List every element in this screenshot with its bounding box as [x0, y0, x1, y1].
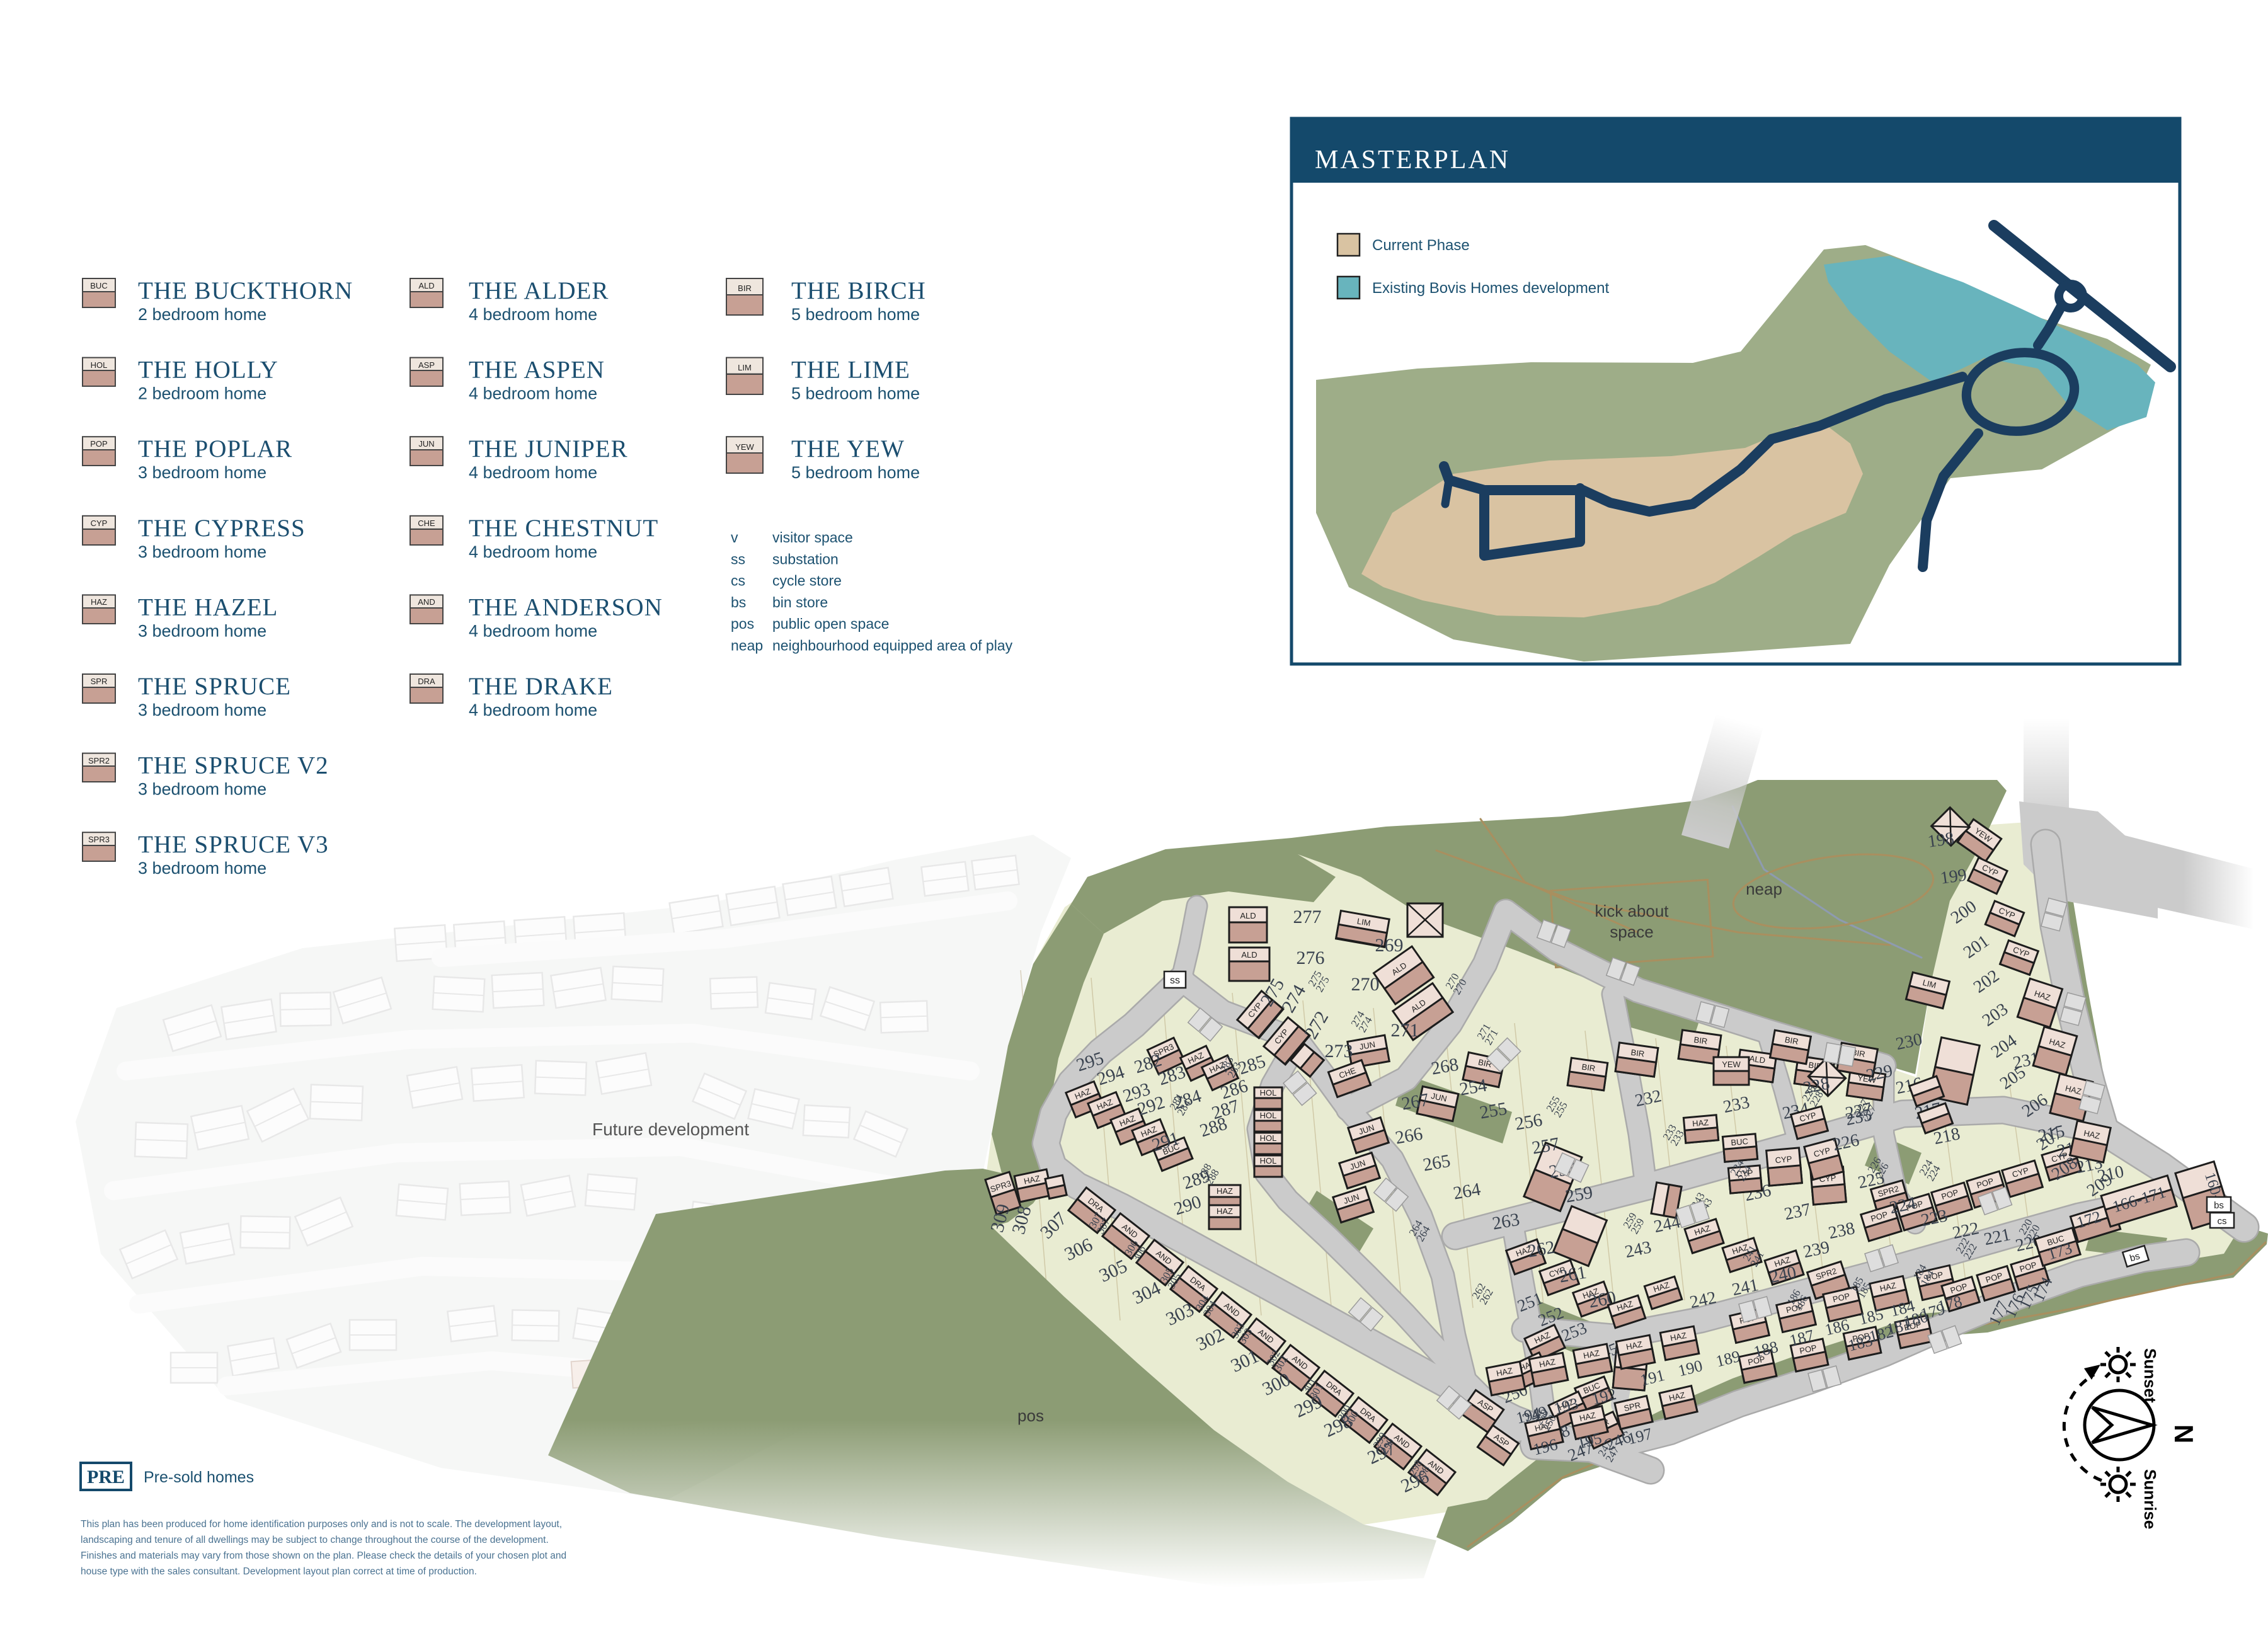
svg-text:5 bedroom home: 5 bedroom home [791, 305, 920, 324]
svg-text:Pre-sold homes: Pre-sold homes [144, 1469, 254, 1486]
svg-text:Current Phase: Current Phase [1372, 237, 1470, 254]
svg-text:ALD: ALD [1240, 911, 1256, 920]
svg-text:199: 199 [1939, 865, 1968, 888]
svg-text:BIR: BIR [1581, 1062, 1596, 1074]
svg-text:HOL: HOL [91, 360, 108, 370]
svg-text:THE YEW: THE YEW [791, 435, 905, 462]
svg-text:neighbourhood equipped area of: neighbourhood equipped area of play [772, 638, 1013, 654]
svg-text:Existing Bovis Homes developme: Existing Bovis Homes development [1372, 280, 1610, 297]
svg-text:3 bedroom home: 3 bedroom home [138, 621, 266, 640]
svg-text:HOL: HOL [1260, 1088, 1277, 1097]
svg-text:cs: cs [731, 573, 745, 589]
svg-text:POP: POP [90, 439, 107, 449]
svg-text:DRA: DRA [418, 677, 435, 686]
svg-text:N: N [2169, 1424, 2199, 1443]
svg-text:neap: neap [731, 638, 763, 654]
svg-text:4 bedroom home: 4 bedroom home [469, 305, 597, 324]
svg-text:Finishes and materials may var: Finishes and materials may vary from tho… [81, 1550, 566, 1561]
svg-text:cycle store: cycle store [772, 573, 842, 589]
svg-text:THE HOLLY: THE HOLLY [138, 357, 278, 384]
svg-text:THE SPRUCE V2: THE SPRUCE V2 [138, 752, 329, 779]
svg-text:THE HAZEL: THE HAZEL [138, 593, 278, 621]
svg-text:5 bedroom home: 5 bedroom home [791, 463, 920, 482]
svg-text:THE BIRCH: THE BIRCH [791, 277, 926, 304]
svg-text:4 bedroom home: 4 bedroom home [469, 542, 597, 561]
svg-text:HAZ: HAZ [91, 597, 107, 607]
svg-text:THE JUNIPER: THE JUNIPER [469, 435, 628, 462]
svg-text:bs: bs [731, 594, 746, 610]
svg-text:THE LIME: THE LIME [791, 357, 910, 384]
svg-text:Future development: Future development [592, 1120, 749, 1139]
svg-text:Sunrise: Sunrise [2141, 1469, 2160, 1529]
svg-text:BUC: BUC [1731, 1137, 1749, 1147]
svg-text:house type with the sales cons: house type with the sales consultant. De… [81, 1566, 477, 1577]
svg-text:3 bedroom home: 3 bedroom home [138, 463, 266, 482]
svg-text:Sunset: Sunset [2141, 1348, 2160, 1403]
svg-text:SPR: SPR [91, 677, 108, 686]
svg-text:THE ASPEN: THE ASPEN [469, 357, 605, 384]
svg-text:THE SPRUCE V3: THE SPRUCE V3 [138, 831, 329, 858]
svg-text:HOL: HOL [1260, 1156, 1277, 1165]
svg-text:ss: ss [1170, 975, 1180, 986]
svg-text:277: 277 [1293, 907, 1322, 927]
svg-text:BIR: BIR [1630, 1048, 1646, 1059]
svg-text:4 bedroom home: 4 bedroom home [469, 384, 597, 403]
svg-text:bin store: bin store [772, 594, 828, 610]
svg-text:CHE: CHE [418, 518, 435, 528]
svg-text:MASTERPLAN: MASTERPLAN [1315, 146, 1510, 175]
svg-text:3 bedroom home: 3 bedroom home [138, 780, 266, 799]
svg-text:YEW: YEW [735, 442, 754, 452]
svg-text:2 bedroom home: 2 bedroom home [138, 384, 266, 403]
svg-text:THE POPLAR: THE POPLAR [138, 435, 292, 462]
svg-text:cs: cs [2218, 1216, 2227, 1227]
svg-text:HAZ: HAZ [1217, 1206, 1233, 1216]
svg-text:public open space: public open space [772, 616, 889, 632]
svg-text:bs: bs [2214, 1200, 2224, 1211]
svg-text:THE SPRUCE: THE SPRUCE [138, 673, 291, 700]
svg-text:CYP: CYP [1775, 1154, 1792, 1165]
svg-text:ALD: ALD [1241, 950, 1257, 959]
svg-text:SPR2: SPR2 [88, 756, 110, 765]
svg-text:LIM: LIM [738, 363, 752, 372]
svg-text:This plan has been produced fo: This plan has been produced for home ide… [81, 1519, 562, 1530]
svg-text:THE CHESTNUT: THE CHESTNUT [469, 515, 658, 542]
svg-text:THE ALDER: THE ALDER [469, 277, 609, 304]
svg-text:273: 273 [1325, 1041, 1353, 1062]
svg-text:BIR: BIR [1693, 1035, 1709, 1046]
svg-text:ALD: ALD [418, 281, 434, 290]
svg-text:kick about: kick about [1595, 902, 1669, 920]
svg-text:ASP: ASP [418, 360, 435, 370]
svg-text:5 bedroom home: 5 bedroom home [791, 384, 920, 403]
svg-text:271: 271 [1391, 1020, 1419, 1041]
svg-text:HAZ: HAZ [1217, 1186, 1233, 1196]
svg-text:4 bedroom home: 4 bedroom home [469, 621, 597, 640]
svg-text:SPR3: SPR3 [88, 835, 110, 844]
svg-text:v: v [731, 529, 738, 546]
svg-text:pos: pos [731, 616, 754, 632]
svg-text:CYP: CYP [91, 518, 108, 528]
svg-text:3 bedroom home: 3 bedroom home [138, 859, 266, 878]
svg-text:HAZ: HAZ [1692, 1118, 1709, 1128]
svg-text:substation: substation [772, 551, 839, 567]
svg-text:3 bedroom home: 3 bedroom home [138, 542, 266, 561]
svg-text:BUC: BUC [90, 281, 107, 290]
svg-text:landscaping and tenure of all: landscaping and tenure of all dwellings … [81, 1535, 549, 1545]
svg-text:270: 270 [1351, 974, 1380, 995]
svg-text:space: space [1610, 922, 1653, 941]
svg-text:3 bedroom home: 3 bedroom home [138, 701, 266, 719]
svg-text:198: 198 [1927, 828, 1956, 852]
svg-text:BIR: BIR [738, 283, 752, 293]
svg-text:2 bedroom home: 2 bedroom home [138, 305, 266, 324]
svg-text:4 bedroom home: 4 bedroom home [469, 463, 597, 482]
svg-text:THE CYPRESS: THE CYPRESS [138, 515, 306, 542]
svg-text:THE BUCKTHORN: THE BUCKTHORN [138, 277, 353, 304]
svg-text:THE ANDERSON: THE ANDERSON [469, 593, 663, 621]
svg-text:HOL: HOL [1260, 1133, 1277, 1143]
svg-text:pos: pos [1017, 1406, 1044, 1425]
svg-text:269: 269 [1375, 935, 1404, 956]
svg-text:AND: AND [418, 597, 435, 607]
svg-text:HOL: HOL [1260, 1111, 1277, 1120]
svg-text:YEW: YEW [1722, 1060, 1741, 1069]
svg-text:visitor space: visitor space [772, 529, 853, 546]
svg-text:THE DRAKE: THE DRAKE [469, 673, 613, 700]
svg-text:neap: neap [1746, 879, 1782, 898]
svg-text:JUN: JUN [418, 439, 434, 449]
svg-text:PRE: PRE [87, 1467, 125, 1487]
svg-text:ss: ss [731, 551, 745, 567]
svg-text:4 bedroom home: 4 bedroom home [469, 701, 597, 719]
svg-text:276: 276 [1297, 948, 1325, 968]
